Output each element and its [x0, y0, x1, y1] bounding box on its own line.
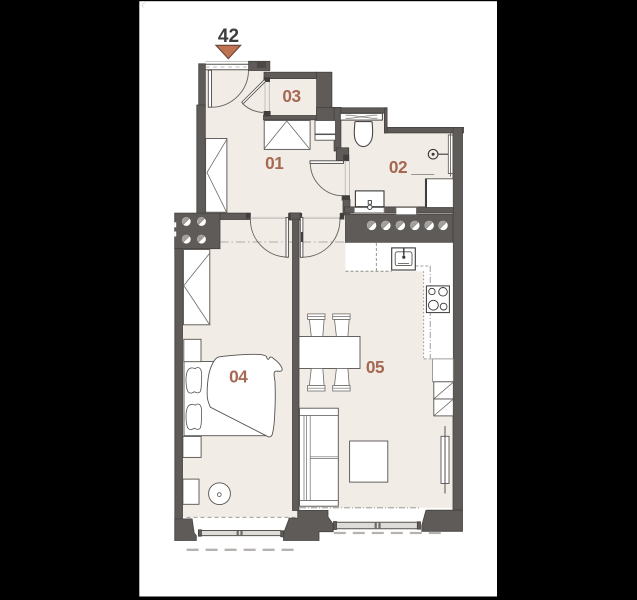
svg-text:03: 03	[282, 86, 300, 106]
svg-text:04: 04	[229, 367, 248, 387]
svg-text:01: 01	[265, 153, 284, 173]
svg-text:42: 42	[218, 26, 239, 47]
svg-text:05: 05	[366, 357, 385, 377]
svg-text:02: 02	[389, 157, 407, 177]
